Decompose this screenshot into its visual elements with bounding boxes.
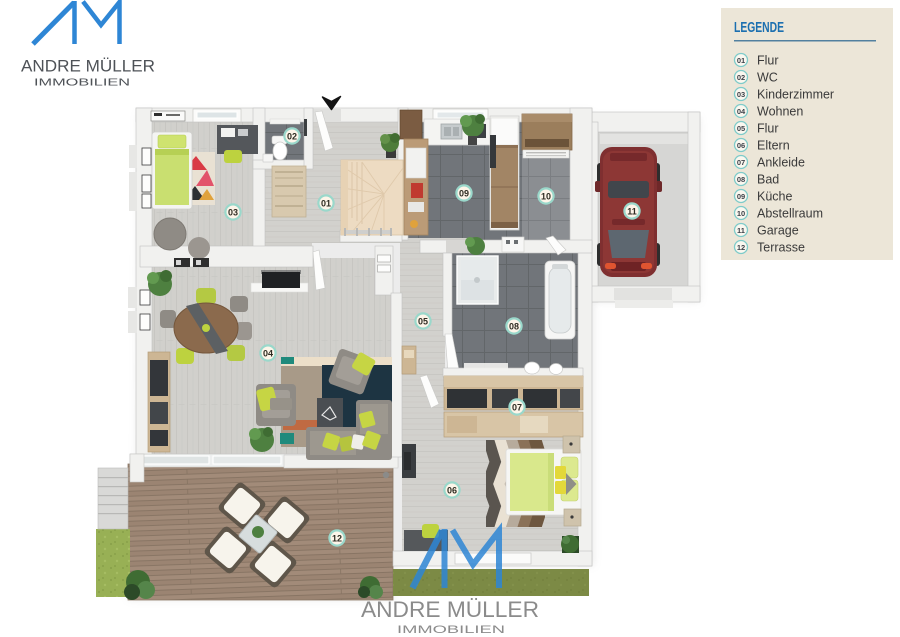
svg-text:03: 03 <box>737 90 745 99</box>
svg-text:04: 04 <box>263 349 273 359</box>
svg-text:09: 09 <box>459 189 469 199</box>
svg-text:01: 01 <box>321 199 331 209</box>
svg-text:IMMOBILIEN: IMMOBILIEN <box>397 624 505 636</box>
svg-text:01: 01 <box>737 56 745 65</box>
svg-text:12: 12 <box>737 243 745 252</box>
svg-text:ANDRE MÜLLER: ANDRE MÜLLER <box>361 597 539 622</box>
svg-text:07: 07 <box>737 158 745 167</box>
svg-text:03: 03 <box>228 208 238 218</box>
svg-text:06: 06 <box>737 141 745 150</box>
svg-text:11: 11 <box>737 226 745 235</box>
svg-text:11: 11 <box>627 207 637 217</box>
svg-text:02: 02 <box>737 73 745 82</box>
svg-text:12: 12 <box>332 534 342 544</box>
svg-text:05: 05 <box>737 124 745 133</box>
svg-text:LEGENDE: LEGENDE <box>734 20 784 36</box>
svg-text:09: 09 <box>737 192 745 201</box>
svg-text:08: 08 <box>509 322 519 332</box>
svg-text:ANDRE MÜLLER: ANDRE MÜLLER <box>21 57 155 76</box>
svg-text:10: 10 <box>737 209 745 218</box>
svg-text:Eltern: Eltern <box>757 139 790 153</box>
svg-text:Wohnen: Wohnen <box>757 105 803 119</box>
svg-text:Ankleide: Ankleide <box>757 156 805 170</box>
svg-text:07: 07 <box>512 403 522 413</box>
svg-text:Terrasse: Terrasse <box>757 241 805 255</box>
svg-text:WC: WC <box>757 71 778 85</box>
svg-text:Garage: Garage <box>757 224 799 238</box>
svg-text:Kinderzimmer: Kinderzimmer <box>757 88 834 102</box>
svg-text:02: 02 <box>287 132 297 142</box>
svg-text:08: 08 <box>737 175 745 184</box>
svg-text:Flur: Flur <box>757 122 779 136</box>
svg-text:Abstellraum: Abstellraum <box>757 207 823 221</box>
svg-text:05: 05 <box>418 317 428 327</box>
svg-text:04: 04 <box>737 107 746 116</box>
svg-text:Flur: Flur <box>757 54 779 68</box>
svg-text:IMMOBILIEN: IMMOBILIEN <box>34 78 130 89</box>
svg-text:Küche: Küche <box>757 190 792 204</box>
svg-text:Bad: Bad <box>757 173 779 187</box>
svg-text:06: 06 <box>447 486 457 496</box>
svg-text:10: 10 <box>541 192 551 202</box>
